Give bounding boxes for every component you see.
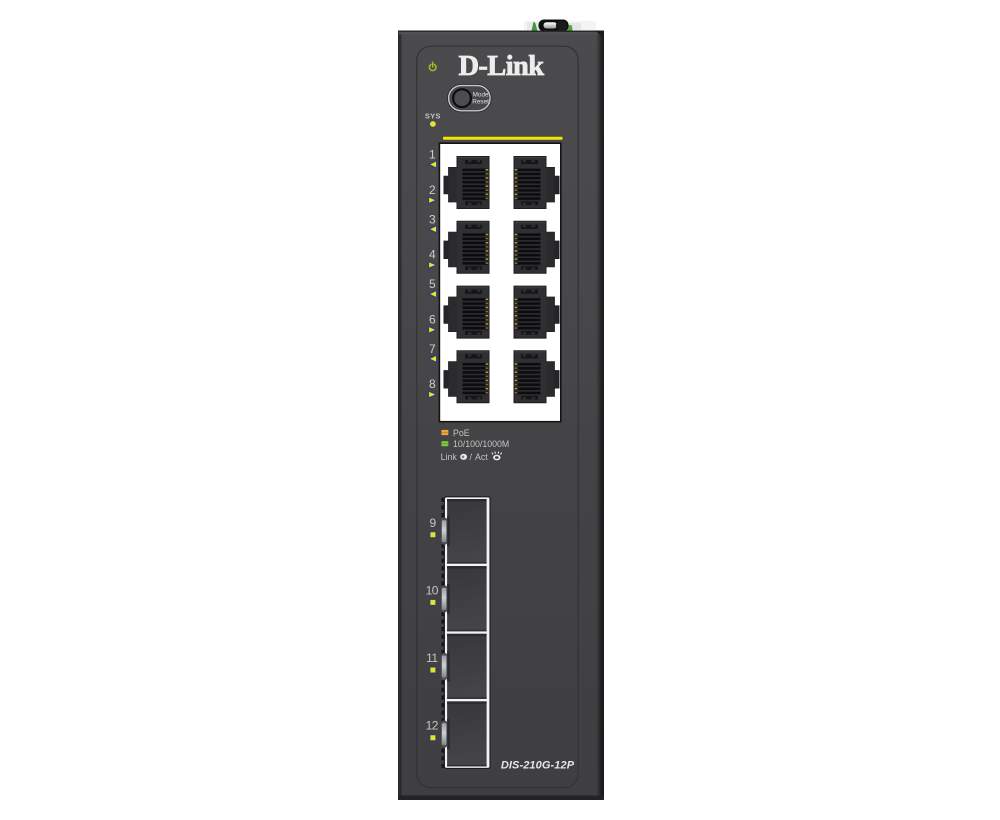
svg-text:10: 10 — [426, 583, 439, 597]
svg-text:1: 1 — [429, 148, 436, 162]
svg-text:11: 11 — [426, 651, 438, 665]
svg-text:6: 6 — [429, 312, 436, 326]
svg-text:SYS: SYS — [425, 111, 441, 120]
svg-text:10/100/1000M: 10/100/1000M — [453, 439, 509, 449]
svg-text:3: 3 — [429, 212, 436, 226]
svg-text:7: 7 — [429, 342, 436, 356]
svg-text:12: 12 — [426, 719, 439, 733]
svg-text:D-Link: D-Link — [458, 51, 544, 82]
svg-text:Link: Link — [441, 452, 458, 462]
svg-text:4: 4 — [429, 248, 436, 262]
svg-text:PoE: PoE — [453, 428, 470, 438]
svg-text:DIS-210G-12P: DIS-210G-12P — [501, 759, 575, 771]
svg-text:2: 2 — [429, 183, 436, 197]
svg-text:Act: Act — [475, 452, 488, 462]
svg-text:Mode: Mode — [473, 92, 489, 99]
svg-text:9: 9 — [429, 516, 436, 530]
svg-text:5: 5 — [429, 277, 436, 291]
svg-text:8: 8 — [429, 377, 436, 391]
svg-text:Reset: Reset — [472, 99, 489, 106]
